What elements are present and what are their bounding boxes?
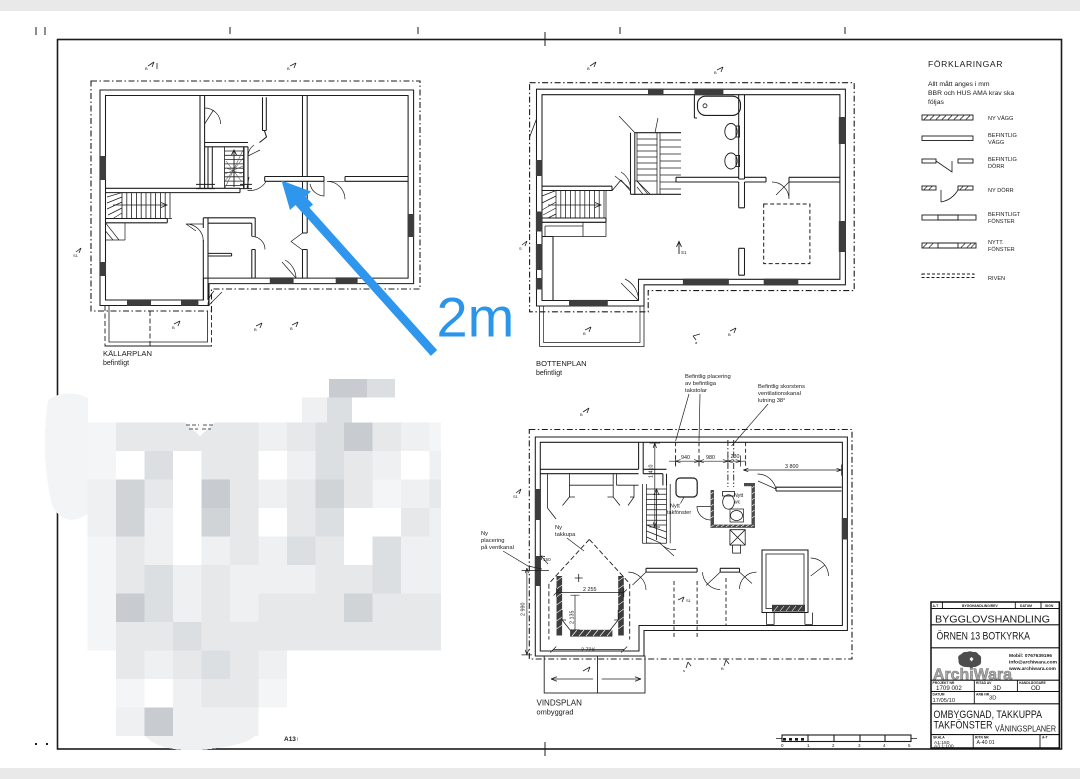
svg-text:DATUM: DATUM: [933, 692, 945, 696]
svg-text:ARB NR: ARB NR: [976, 692, 990, 696]
svg-text:B: B: [172, 325, 175, 330]
svg-text:B: B: [587, 66, 590, 71]
svg-text:placering: placering: [481, 538, 505, 544]
svg-text:Befintlig placering: Befintlig placering: [685, 374, 731, 380]
svg-text:A3 1:100: A3 1:100: [934, 744, 954, 750]
svg-text:BYGGHANDLING/REV: BYGGHANDLING/REV: [962, 604, 999, 608]
svg-text:Nytt: Nytt: [670, 504, 680, 510]
svg-text:A13↑: A13↑: [284, 736, 299, 743]
svg-text:VÄGG: VÄGG: [988, 139, 1004, 146]
svg-text:info@archiwara.com: info@archiwara.com: [1009, 660, 1058, 666]
svg-text:TAKFÖNSTER: TAKFÖNSTER: [934, 720, 993, 732]
svg-text:FÖNSTER: FÖNSTER: [988, 218, 1015, 225]
svg-text:av befintliga: av befintliga: [685, 381, 717, 387]
svg-text:NY VÄGG: NY VÄGG: [988, 115, 1013, 122]
svg-text:KÄLLARPLAN: KÄLLARPLAN: [103, 349, 152, 358]
svg-text:S1: S1: [681, 250, 687, 255]
svg-text:följas: följas: [928, 99, 944, 106]
svg-text:2 72X: 2 72X: [581, 648, 595, 654]
svg-text:B: B: [287, 66, 290, 71]
svg-text:1 410: 1 410: [649, 465, 655, 479]
svg-text:940: 940: [681, 455, 690, 461]
svg-text:BEFINTLIG: BEFINTLIG: [988, 157, 1017, 163]
svg-text:befintligt: befintligt: [103, 360, 129, 367]
svg-text:ventilationskanal: ventilationskanal: [758, 391, 801, 397]
svg-text:Nytt: Nytt: [734, 493, 744, 499]
svg-text:150: 150: [543, 557, 551, 562]
svg-text:1709 002: 1709 002: [936, 685, 962, 692]
svg-text:Befintlig skorstens: Befintlig skorstens: [758, 384, 805, 390]
svg-text:S1: S1: [513, 494, 519, 499]
svg-text:RIVEN: RIVEN: [988, 276, 1005, 282]
svg-text:3 800: 3 800: [785, 464, 799, 470]
svg-text:Mobil: 0767639196: Mobil: 0767639196: [1009, 653, 1052, 659]
svg-text:A-T: A-T: [1042, 736, 1049, 740]
svg-text:takfönster: takfönster: [667, 510, 691, 516]
svg-text:BOTTENPLAN: BOTTENPLAN: [536, 359, 587, 368]
svg-text:FÖRKLARINGAR: FÖRKLARINGAR: [928, 59, 1003, 69]
svg-text:FÖNSTER: FÖNSTER: [988, 246, 1015, 253]
svg-text:A-40 01: A-40 01: [977, 740, 995, 746]
svg-text:Allt mått anges i mm: Allt mått anges i mm: [928, 80, 990, 88]
svg-text:ÖRNEN 13 BOTKYRKA: ÖRNEN 13 BOTKYRKA: [937, 630, 1031, 642]
svg-text:VINDSPLAN: VINDSPLAN: [537, 699, 583, 708]
svg-text:S: S: [519, 246, 522, 251]
svg-text:S1: S1: [73, 253, 79, 258]
svg-text:SKALA: SKALA: [933, 736, 945, 740]
svg-text:Ny: Ny: [555, 525, 562, 531]
svg-text:BBR och HUS AMA krav ska: BBR och HUS AMA krav ska: [928, 90, 1014, 97]
svg-text:SIGN: SIGN: [1045, 604, 1054, 608]
svg-text:B: B: [254, 327, 257, 332]
svg-text:B: B: [721, 666, 724, 671]
svg-text:Ny: Ny: [481, 531, 488, 537]
svg-text:BEFINTLIG: BEFINTLIG: [988, 133, 1017, 139]
svg-text:RITAD AV: RITAD AV: [976, 681, 992, 685]
svg-text:B: B: [580, 412, 583, 417]
svg-text:wc: wc: [734, 500, 741, 506]
svg-text:DATUM: DATUM: [1020, 604, 1032, 608]
svg-text:3D: 3D: [993, 685, 1001, 692]
svg-text:s: s: [683, 668, 685, 673]
svg-text:NY DÖRR: NY DÖRR: [988, 187, 1014, 194]
svg-text:B: B: [290, 326, 293, 331]
svg-text:3D: 3D: [989, 696, 996, 702]
svg-text:på ventkanal: på ventkanal: [481, 544, 514, 551]
svg-text:OD: OD: [1031, 685, 1041, 692]
svg-text:S1: S1: [686, 598, 692, 603]
svg-text:BYGGLOVSHANDLING: BYGGLOVSHANDLING: [935, 614, 1050, 625]
svg-text:B: B: [583, 331, 586, 336]
svg-text:B: B: [714, 70, 717, 75]
svg-text:2 255: 2 255: [583, 587, 597, 593]
svg-text:2 990: 2 990: [521, 603, 527, 617]
svg-text:17/05/10: 17/05/10: [933, 698, 956, 704]
svg-text:2 135: 2 135: [570, 611, 576, 625]
svg-text:RITN NR: RITN NR: [975, 736, 989, 740]
svg-text:BEFINTLIGT: BEFINTLIGT: [988, 212, 1021, 218]
svg-text:takkupa: takkupa: [555, 532, 576, 538]
svg-text:lutning 38°: lutning 38°: [758, 398, 785, 404]
svg-text:ombyggrad: ombyggrad: [537, 708, 574, 717]
svg-text:befintligt: befintligt: [536, 370, 562, 377]
svg-text:B: B: [728, 332, 731, 337]
svg-text:2m: 2m: [437, 286, 515, 349]
svg-text:B: B: [145, 66, 148, 71]
svg-text:980: 980: [706, 455, 715, 461]
svg-text:www.archiwara.com: www.archiwara.com: [1008, 666, 1056, 672]
svg-text:A-T: A-T: [933, 604, 940, 608]
svg-text:NYTT.: NYTT.: [988, 240, 1004, 246]
svg-text:takstolar: takstolar: [685, 388, 707, 394]
svg-text:DÖRR: DÖRR: [988, 163, 1004, 170]
svg-text:VÅNINGSPLANER: VÅNINGSPLANER: [995, 725, 1056, 734]
svg-text:230: 230: [731, 454, 740, 460]
